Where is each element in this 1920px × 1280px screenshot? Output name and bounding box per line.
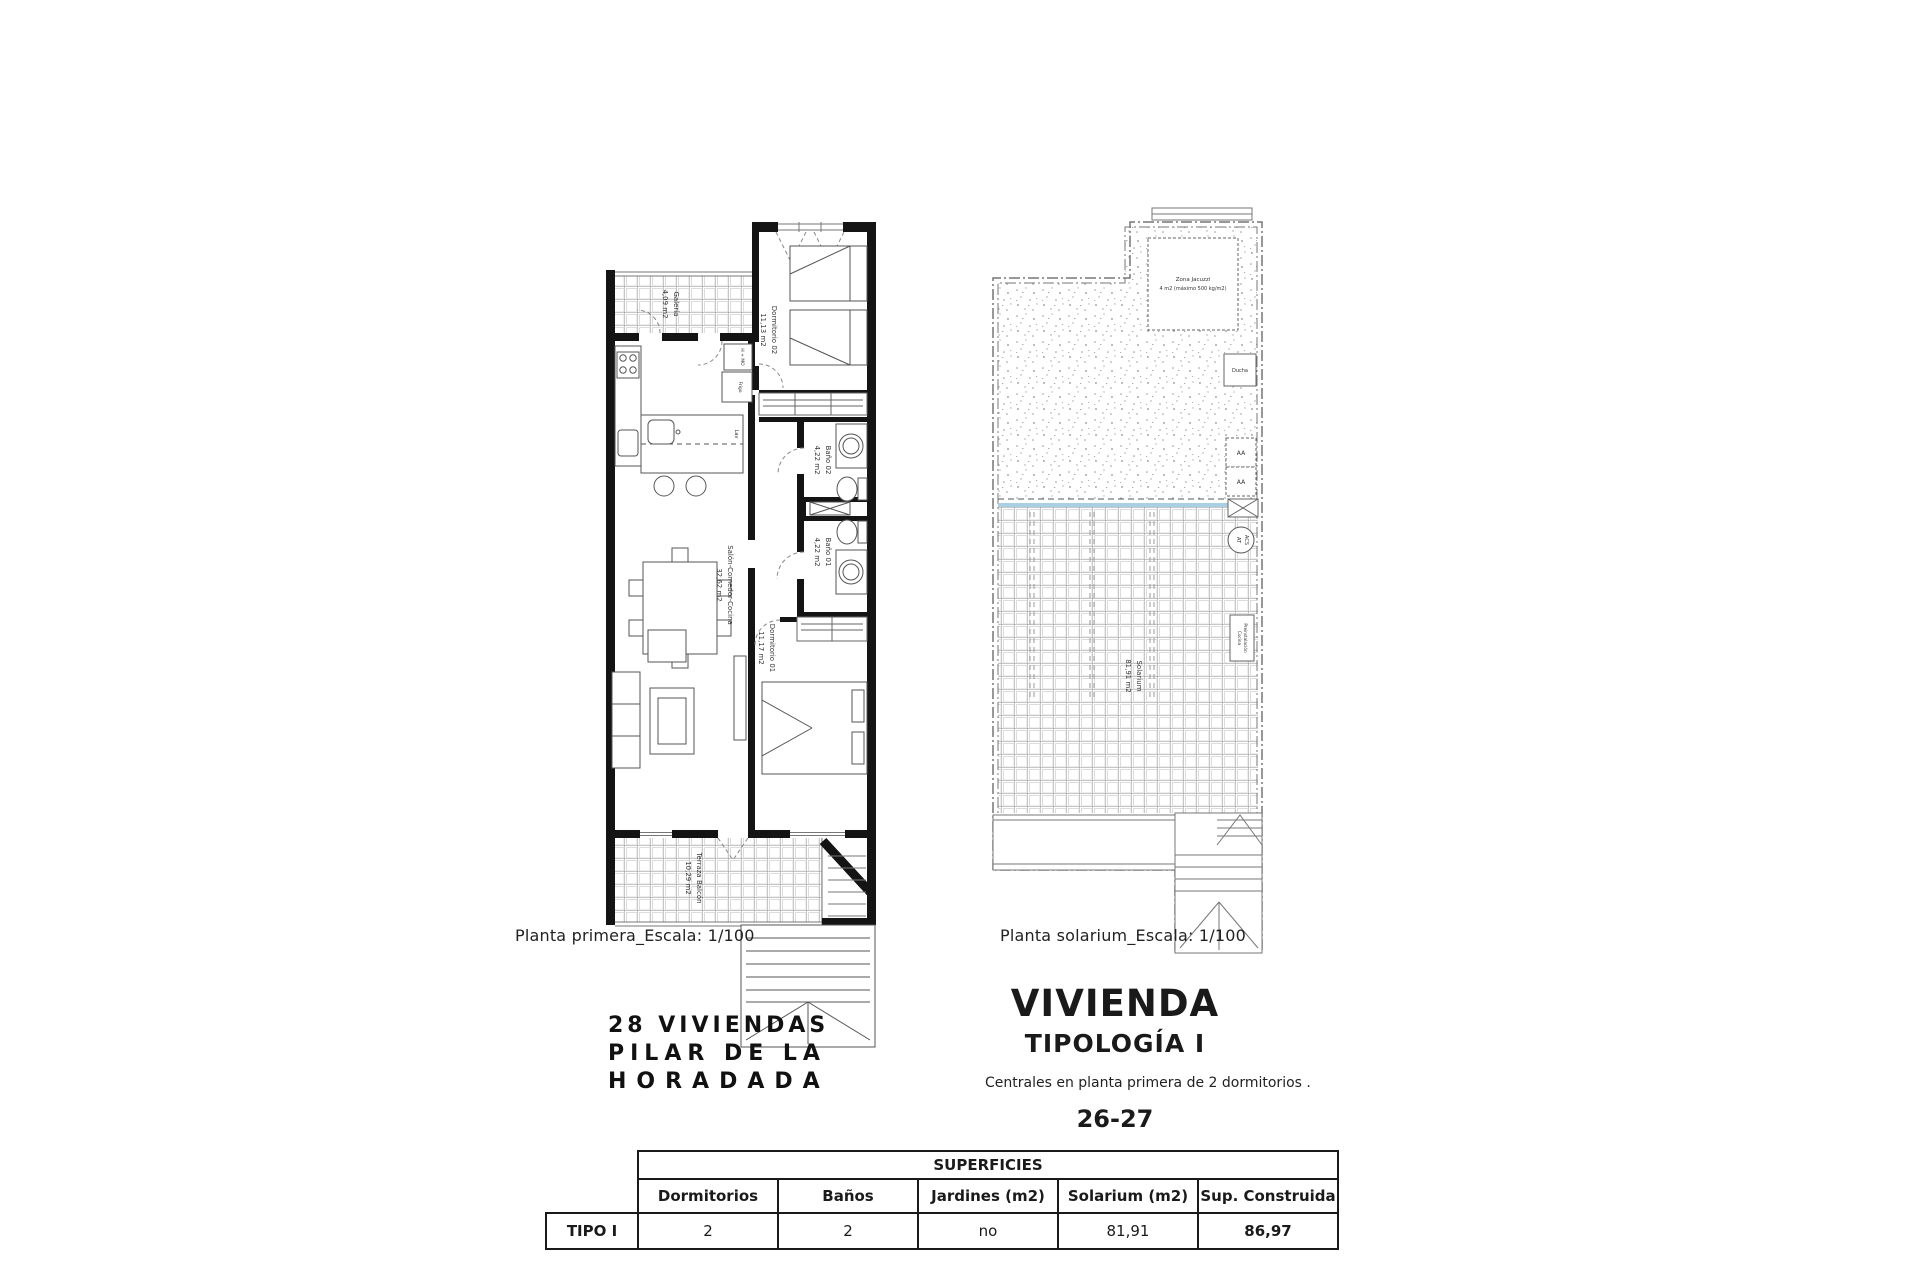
table-spacer-cell (546, 1151, 638, 1179)
value-jardines: no (918, 1213, 1058, 1249)
typology-subtitle: Centrales en planta primera de 2 dormito… (985, 1075, 1245, 1091)
column-header-solarium: Solarium (m2) (1058, 1179, 1198, 1213)
acs-label-line2: AT (1235, 537, 1241, 544)
project-title-line-2: PILAR DE LA (608, 1040, 798, 1068)
label-frigo: Frigo (737, 382, 743, 393)
value-sup-construida: 86,97 (1198, 1213, 1338, 1249)
room-label-dorm01-name: Dormitorio 01 (768, 624, 776, 672)
louver-box (1228, 499, 1258, 517)
table-title-superficies: SUPERFICIES (638, 1151, 1338, 1179)
project-title-block: 28 VIVIENDAS PILAR DE LA HORADADA (608, 1012, 798, 1096)
planta-solarium-drawing: Zona Jacuzzi 4 m2 (máximo 500 kg/m2) Duc… (980, 195, 1280, 965)
row-label-tipo-i: TIPO I (546, 1213, 638, 1249)
label-horno-micro: H + MO (739, 348, 745, 366)
room-label-salon-name: Salón-Comedor-Cocina (726, 545, 734, 625)
room-label-galeria-area: 4,09 m2 (661, 289, 669, 318)
jacuzzi-label-line1: Zona Jacuzzi (1176, 277, 1211, 283)
project-title-line-1: 28 VIVIENDAS (608, 1012, 798, 1040)
preinstallation-box: Preinstalación Cocina (1230, 615, 1254, 661)
shower-box: Ducha (1224, 354, 1256, 386)
ac-unit-label-1: AA (1237, 450, 1246, 457)
acs-unit: ACS AT (1228, 527, 1254, 553)
floor-plan-planta-solarium: Zona Jacuzzi 4 m2 (máximo 500 kg/m2) Duc… (980, 195, 1280, 965)
value-solarium: 81,91 (1058, 1213, 1198, 1249)
dwelling-title-block: VIVIENDA TIPOLOGÍA I Centrales en planta… (985, 982, 1245, 1133)
room-label-galeria-name: Galería (672, 291, 680, 316)
room-label-bano01-name: Baño 01 (824, 538, 832, 567)
typology-title: TIPOLOGÍA I (985, 1029, 1245, 1058)
unit-numbers: 26-27 (985, 1105, 1245, 1133)
preinstallation-label-line2: Cocina (1237, 631, 1242, 646)
column-header-sup-construida: Sup. Construida (1198, 1179, 1338, 1213)
galeria-floor (615, 272, 752, 333)
room-label-terraza-area: 10,29 m2 (684, 861, 692, 895)
kitchen-fixtures (615, 344, 752, 496)
value-dormitorios: 2 (638, 1213, 778, 1249)
room-label-bano02-area: 4,22 m2 (813, 445, 821, 474)
label-lav: Lav (733, 430, 739, 439)
room-label-terraza-name: Terraza Balcón (695, 851, 703, 903)
ac-unit-label-2: AA (1237, 479, 1246, 486)
dwelling-title: VIVIENDA (985, 982, 1245, 1025)
room-label-bano02-name: Baño 02 (824, 446, 832, 475)
terraza-floor (615, 838, 822, 926)
room-label-dorm02-name: Dormitorio 02 (770, 306, 778, 354)
table-spacer-cell (546, 1179, 638, 1213)
acs-label-line1: ACS (1243, 535, 1249, 545)
jacuzzi-zone: Zona Jacuzzi 4 m2 (máximo 500 kg/m2) (1148, 238, 1238, 330)
bathroom-01-fixtures (836, 520, 867, 594)
column-header-dormitorios: Dormitorios (638, 1179, 778, 1213)
column-header-banos: Baños (778, 1179, 918, 1213)
preinstallation-label-line1: Preinstalación (1243, 623, 1248, 653)
room-label-solarium-area: 81,91 m2 (1124, 659, 1132, 693)
room-label-solarium-name: Solarium (1135, 660, 1143, 691)
column-header-jardines: Jardines (m2) (918, 1179, 1058, 1213)
room-label-bano01-area: 4,22 m2 (813, 537, 821, 566)
room-label-dorm02-area: 11,13 m2 (759, 313, 767, 347)
jacuzzi-label-line2: 4 m2 (máximo 500 kg/m2) (1159, 285, 1226, 292)
ac-units: AA AA (1226, 438, 1256, 496)
shower-label: Ducha (1232, 368, 1248, 374)
value-banos: 2 (778, 1213, 918, 1249)
plan-sheet: Galería 4,09 m2 Dormitorio 02 11,13 m2 B… (0, 0, 1920, 1280)
project-title-line-3: HORADADA (608, 1068, 798, 1096)
room-label-salon-area: 32,62 m2 (715, 568, 723, 602)
pool-edge-line (998, 503, 1228, 507)
room-label-dorm01-area: 11,17 m2 (757, 631, 765, 665)
caption-planta-solarium: Planta solarium_Escala: 1/100 (1000, 926, 1246, 945)
living-dining-furniture (612, 548, 746, 768)
caption-planta-primera: Planta primera_Escala: 1/100 (515, 926, 755, 945)
superficies-table: SUPERFICIES Dormitorios Baños Jardines (… (545, 1150, 1339, 1250)
